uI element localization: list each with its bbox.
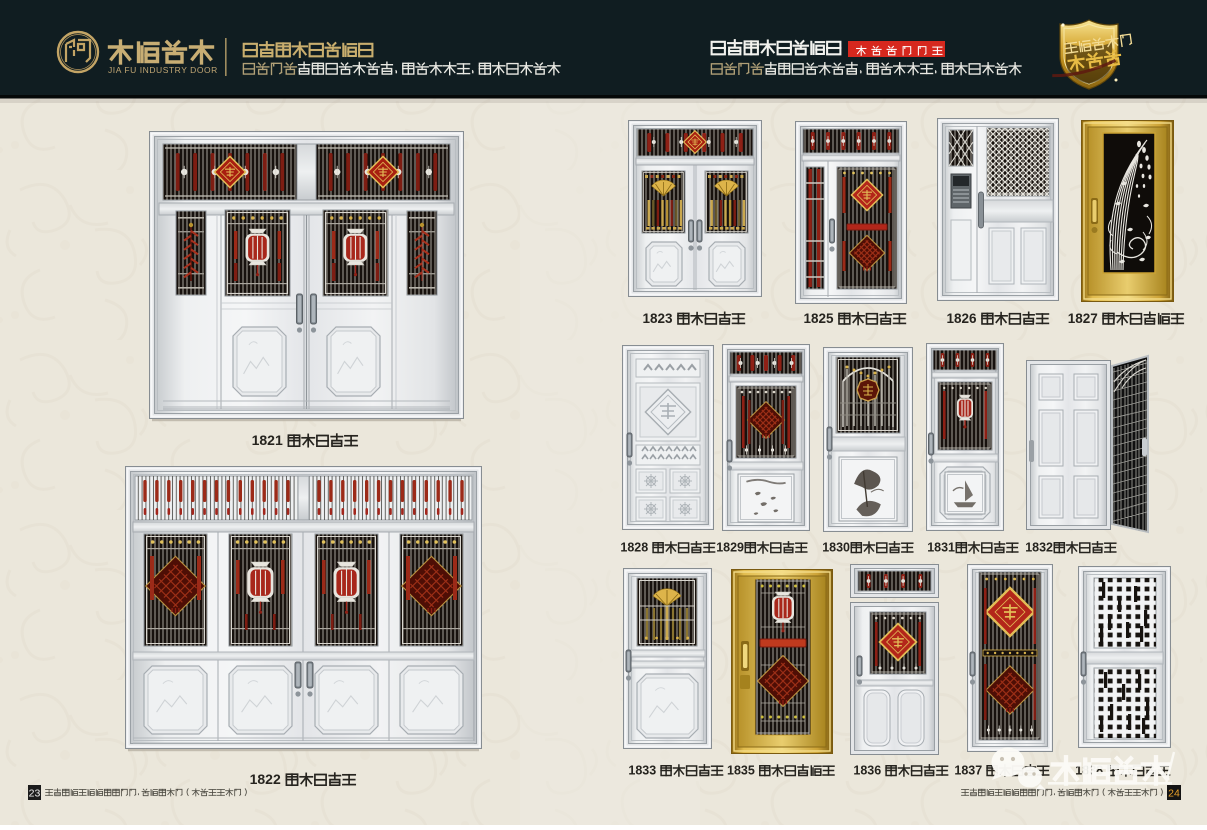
svg-text:1835: 1835 — [727, 764, 755, 778]
svg-text:1823: 1823 — [643, 311, 674, 326]
svg-text:1831: 1831 — [927, 541, 955, 555]
svg-text:1837: 1837 — [954, 764, 982, 778]
svg-text:1832: 1832 — [1025, 541, 1053, 555]
svg-text:1826: 1826 — [947, 311, 978, 326]
svg-text:JIA FU INDUSTRY DOOR: JIA FU INDUSTRY DOOR — [108, 65, 218, 75]
svg-text:1822: 1822 — [250, 771, 281, 787]
svg-text:1827: 1827 — [1068, 311, 1098, 326]
svg-text:1828: 1828 — [620, 541, 648, 555]
svg-text:24: 24 — [1168, 788, 1180, 800]
svg-text:1821: 1821 — [252, 432, 283, 448]
svg-text:1825: 1825 — [804, 311, 835, 326]
svg-text:1829: 1829 — [716, 541, 744, 555]
svg-text:1830: 1830 — [822, 541, 850, 555]
svg-text:1833: 1833 — [628, 764, 656, 778]
svg-text:23: 23 — [29, 788, 41, 800]
svg-text:1836: 1836 — [853, 764, 881, 778]
